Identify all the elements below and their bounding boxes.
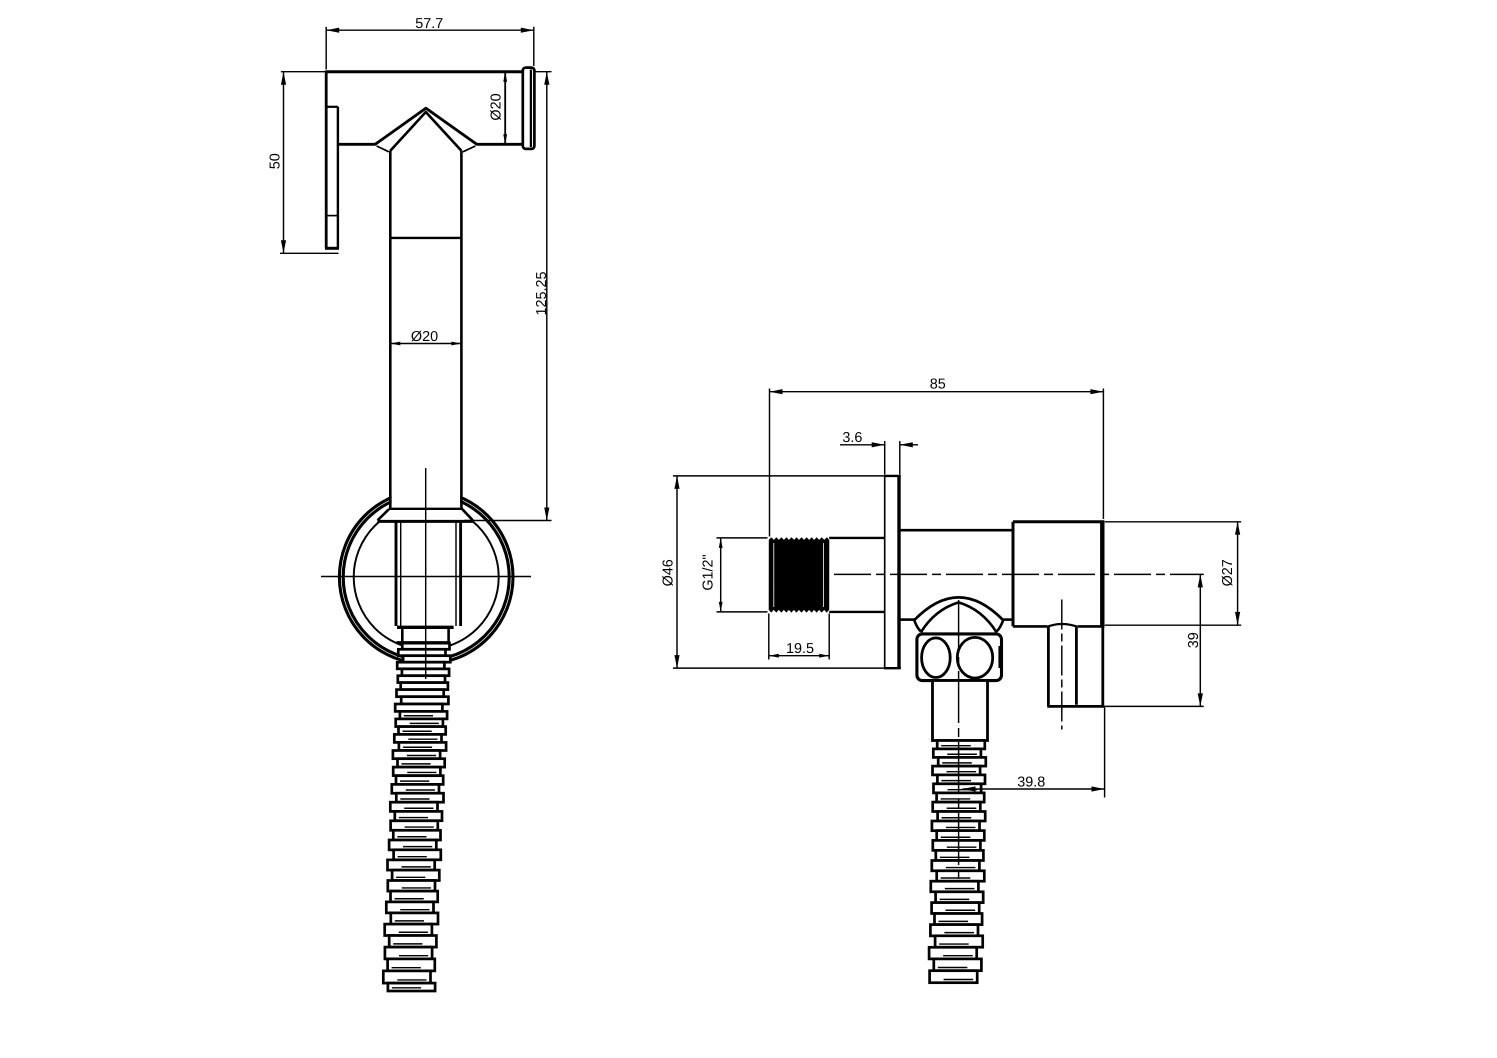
svg-text:G1/2": G1/2" [701, 554, 717, 590]
svg-text:39.8: 39.8 [1017, 775, 1045, 791]
svg-text:3.6: 3.6 [842, 430, 862, 446]
svg-text:Ø20: Ø20 [488, 93, 504, 120]
svg-text:Ø27: Ø27 [1220, 559, 1236, 586]
svg-text:Ø20: Ø20 [411, 329, 438, 345]
svg-text:57.7: 57.7 [415, 16, 443, 32]
svg-text:39: 39 [1186, 632, 1202, 648]
svg-text:50: 50 [267, 153, 283, 169]
svg-text:Ø46: Ø46 [660, 559, 676, 586]
svg-text:19.5: 19.5 [786, 641, 814, 657]
svg-text:85: 85 [930, 377, 946, 393]
svg-text:125.25: 125.25 [534, 271, 550, 315]
